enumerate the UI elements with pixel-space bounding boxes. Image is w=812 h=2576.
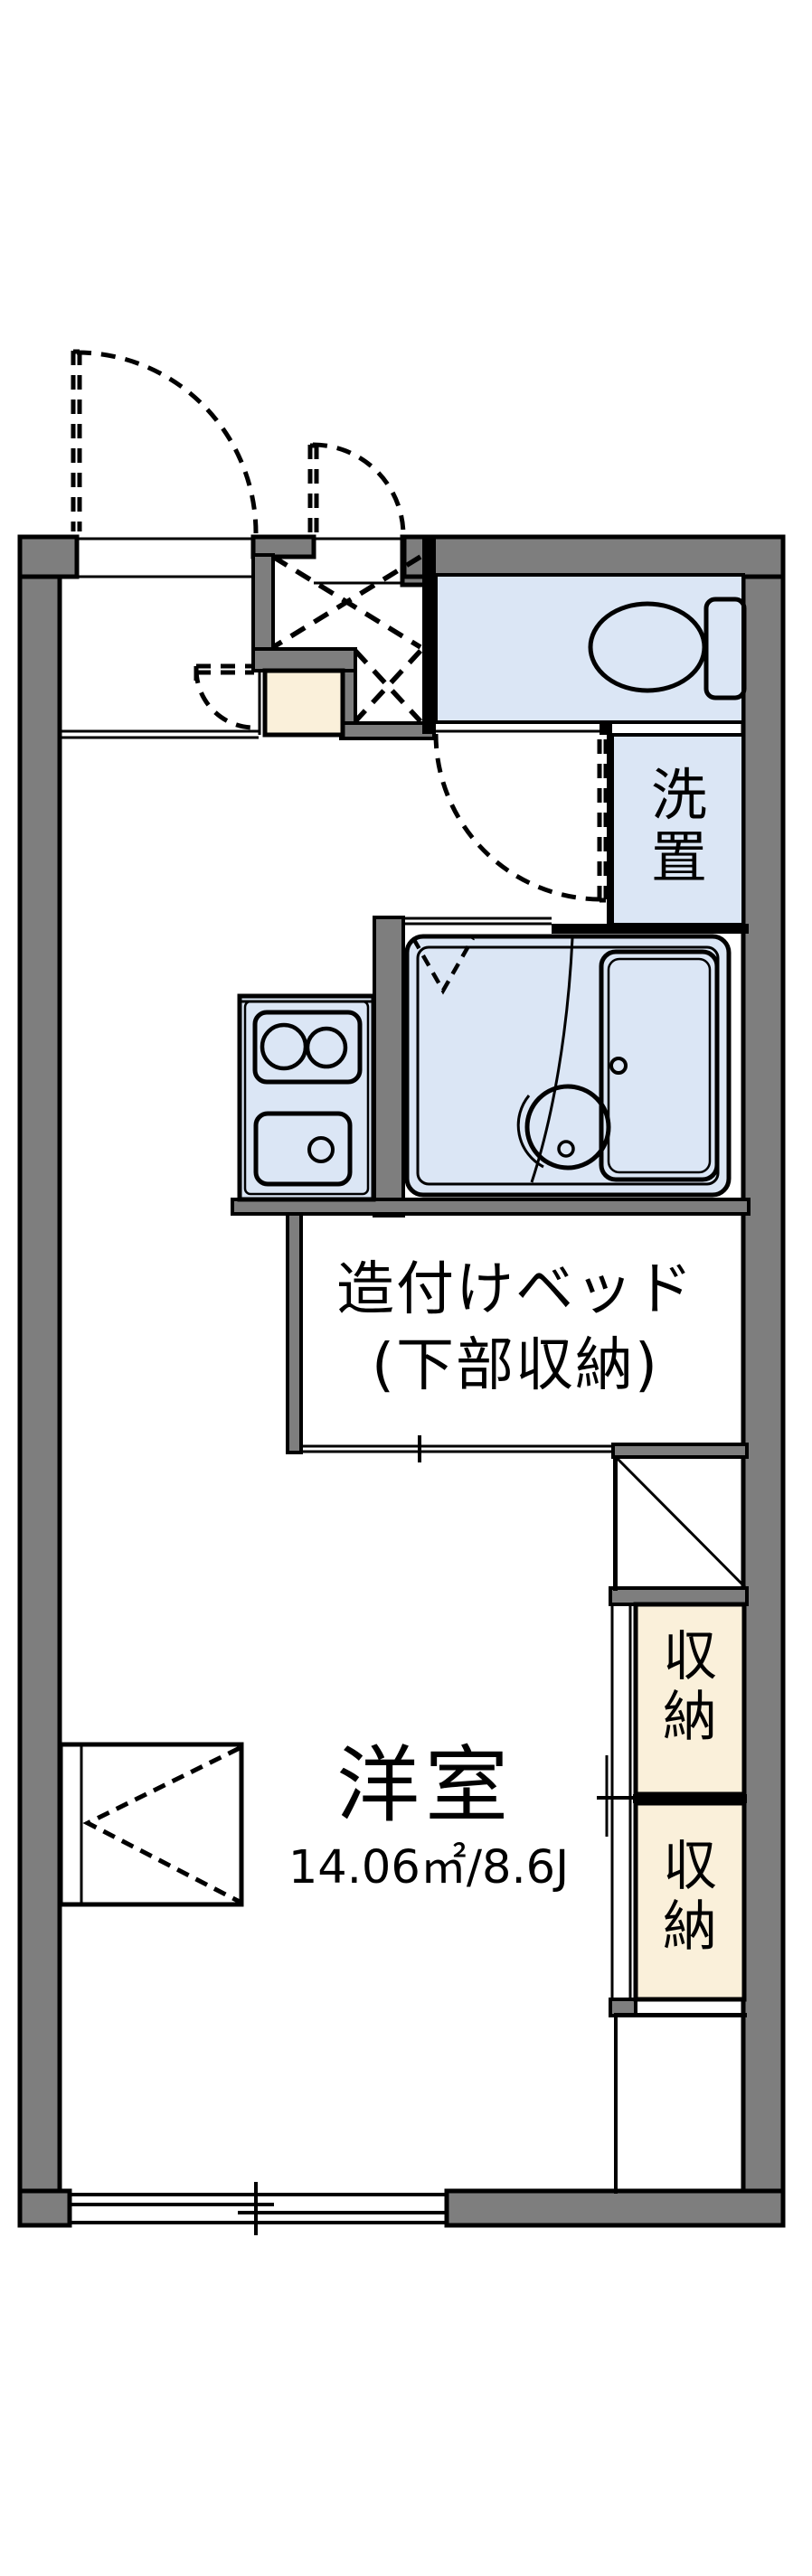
entrance-door-swing-arc-icon <box>73 351 256 533</box>
room-size-label: 14.06㎡/8.6J <box>148 1842 709 1894</box>
hall-door-swing-arc-icon <box>196 666 254 728</box>
sliding-window-icon <box>70 2182 447 2235</box>
kitchen-unit <box>240 996 373 1199</box>
built-in-bed-label-line1: 造付けベッド <box>244 1258 787 1323</box>
built-in-bed-label-line2: (下部収納) <box>244 1334 787 1399</box>
storage-upper-label: 収納 <box>659 1627 721 1748</box>
washer-space-label: 洗置 <box>647 764 711 889</box>
floor-plan: 造付けベッド (下部収納) 洋室 14.06㎡/8.6J 洗置 収納 収納 <box>0 0 812 2576</box>
secondary-door-swing-arc-icon <box>310 445 403 535</box>
storage-lower-label: 収納 <box>659 1837 721 1958</box>
entrance-step <box>265 671 343 735</box>
room-name-label: 洋室 <box>154 1739 696 1832</box>
refrigerator-space-diagonal-icon <box>618 1459 746 1588</box>
toilet-door-swing-arc-icon <box>436 734 606 900</box>
